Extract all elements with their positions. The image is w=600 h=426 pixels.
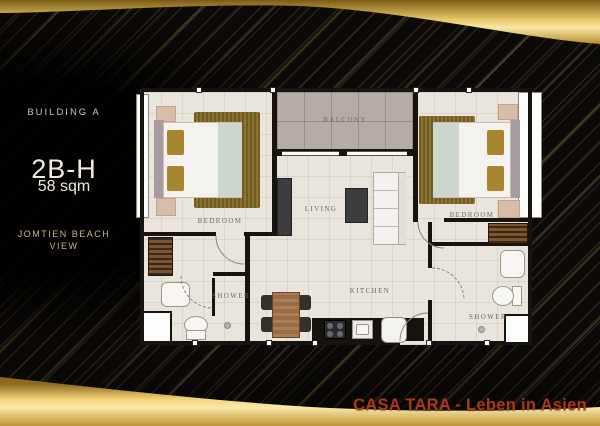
room-label-shower-right: SHOWER xyxy=(469,313,507,321)
room-label-bedroom-left: BEDROOM xyxy=(198,217,243,225)
building-label: BUILDING A xyxy=(14,107,114,118)
view-line2: VIEW xyxy=(49,241,78,251)
view-line1: JOMTIEN BEACH xyxy=(18,229,111,239)
room-label-shower-left: SHOWER xyxy=(212,292,250,300)
view-label: JOMTIEN BEACH VIEW xyxy=(6,228,122,252)
unit-area: 58 sqm xyxy=(8,178,120,196)
room-label-bedroom-right: BEDROOM xyxy=(450,211,495,219)
brand-text: CASA TARA - Leben in Asien xyxy=(353,396,587,415)
floorplan: BEDROOM BALCONY LIVING BEDROOM KITCHEN S… xyxy=(136,86,544,348)
room-label-balcony: BALCONY xyxy=(323,116,367,124)
room-label-kitchen: KITCHEN xyxy=(350,287,391,295)
room-label-living: LIVING xyxy=(305,205,338,213)
poster-background: BUILDING A 2B-H 58 sqm JOMTIEN BEACH VIE… xyxy=(0,0,600,426)
gold-swoosh-top xyxy=(0,0,600,50)
